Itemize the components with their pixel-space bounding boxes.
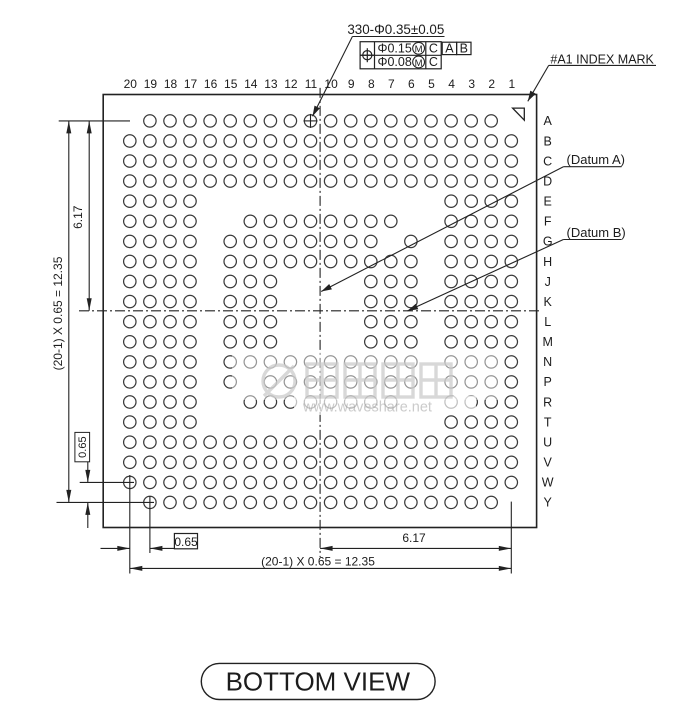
svg-text:C: C bbox=[543, 154, 552, 168]
svg-text:12: 12 bbox=[284, 77, 298, 91]
svg-text:J: J bbox=[545, 275, 551, 289]
svg-text:5: 5 bbox=[428, 77, 435, 91]
svg-text:(20-1) X 0.65 = 12.35: (20-1) X 0.65 = 12.35 bbox=[261, 555, 375, 569]
svg-text:Φ0.15: Φ0.15 bbox=[378, 42, 412, 56]
svg-text:L: L bbox=[544, 315, 551, 329]
svg-text:(20-1) X 0.65 = 12.35: (20-1) X 0.65 = 12.35 bbox=[51, 256, 65, 370]
svg-text:0.65: 0.65 bbox=[77, 436, 89, 457]
svg-text:6.17: 6.17 bbox=[71, 205, 85, 229]
svg-text:T: T bbox=[544, 415, 552, 429]
svg-text:9: 9 bbox=[348, 77, 355, 91]
svg-text:A: A bbox=[544, 114, 553, 128]
svg-text:8: 8 bbox=[368, 77, 375, 91]
svg-text:U: U bbox=[543, 436, 552, 450]
svg-text:(Datum B): (Datum B) bbox=[567, 225, 626, 240]
svg-text:16: 16 bbox=[204, 77, 218, 91]
svg-text:330-Φ0.35±0.05: 330-Φ0.35±0.05 bbox=[347, 22, 444, 37]
svg-text:B: B bbox=[544, 134, 552, 148]
svg-text:A: A bbox=[445, 42, 454, 56]
svg-text:Φ0.08: Φ0.08 bbox=[378, 55, 412, 69]
svg-text:20: 20 bbox=[124, 77, 138, 91]
svg-text:P: P bbox=[544, 375, 552, 389]
svg-text:C: C bbox=[429, 42, 438, 56]
svg-text:15: 15 bbox=[224, 77, 238, 91]
svg-text:6.17: 6.17 bbox=[402, 531, 426, 545]
svg-text:1: 1 bbox=[508, 77, 515, 91]
svg-text:7: 7 bbox=[388, 77, 395, 91]
svg-text:www.waveshare.net: www.waveshare.net bbox=[302, 400, 432, 416]
svg-text:W: W bbox=[542, 476, 554, 490]
svg-text:2: 2 bbox=[488, 77, 495, 91]
svg-text:M: M bbox=[415, 44, 423, 55]
svg-text:H: H bbox=[543, 255, 552, 269]
svg-text:B: B bbox=[460, 42, 468, 56]
svg-text:F: F bbox=[544, 215, 552, 229]
svg-text:C: C bbox=[429, 55, 438, 69]
svg-text:BOTTOM VIEW: BOTTOM VIEW bbox=[226, 667, 411, 697]
svg-text:M: M bbox=[542, 335, 552, 349]
svg-text:#A1 INDEX MARK: #A1 INDEX MARK bbox=[550, 52, 654, 66]
svg-text:(Datum A): (Datum A) bbox=[567, 152, 626, 167]
svg-text:13: 13 bbox=[264, 77, 278, 91]
svg-text:14: 14 bbox=[244, 77, 258, 91]
svg-text:M: M bbox=[415, 58, 423, 69]
svg-text:0.65: 0.65 bbox=[174, 535, 198, 549]
svg-text:4: 4 bbox=[448, 77, 455, 91]
svg-text:3: 3 bbox=[468, 77, 475, 91]
svg-text:Y: Y bbox=[544, 496, 553, 510]
svg-text:E: E bbox=[544, 195, 552, 209]
svg-text:18: 18 bbox=[164, 77, 178, 91]
svg-text:V: V bbox=[544, 456, 553, 470]
svg-text:K: K bbox=[544, 295, 553, 309]
svg-text:R: R bbox=[543, 395, 552, 409]
svg-text:6: 6 bbox=[408, 77, 415, 91]
svg-text:N: N bbox=[543, 355, 552, 369]
svg-text:17: 17 bbox=[184, 77, 198, 91]
svg-text:19: 19 bbox=[144, 77, 158, 91]
svg-text:11: 11 bbox=[305, 77, 318, 91]
